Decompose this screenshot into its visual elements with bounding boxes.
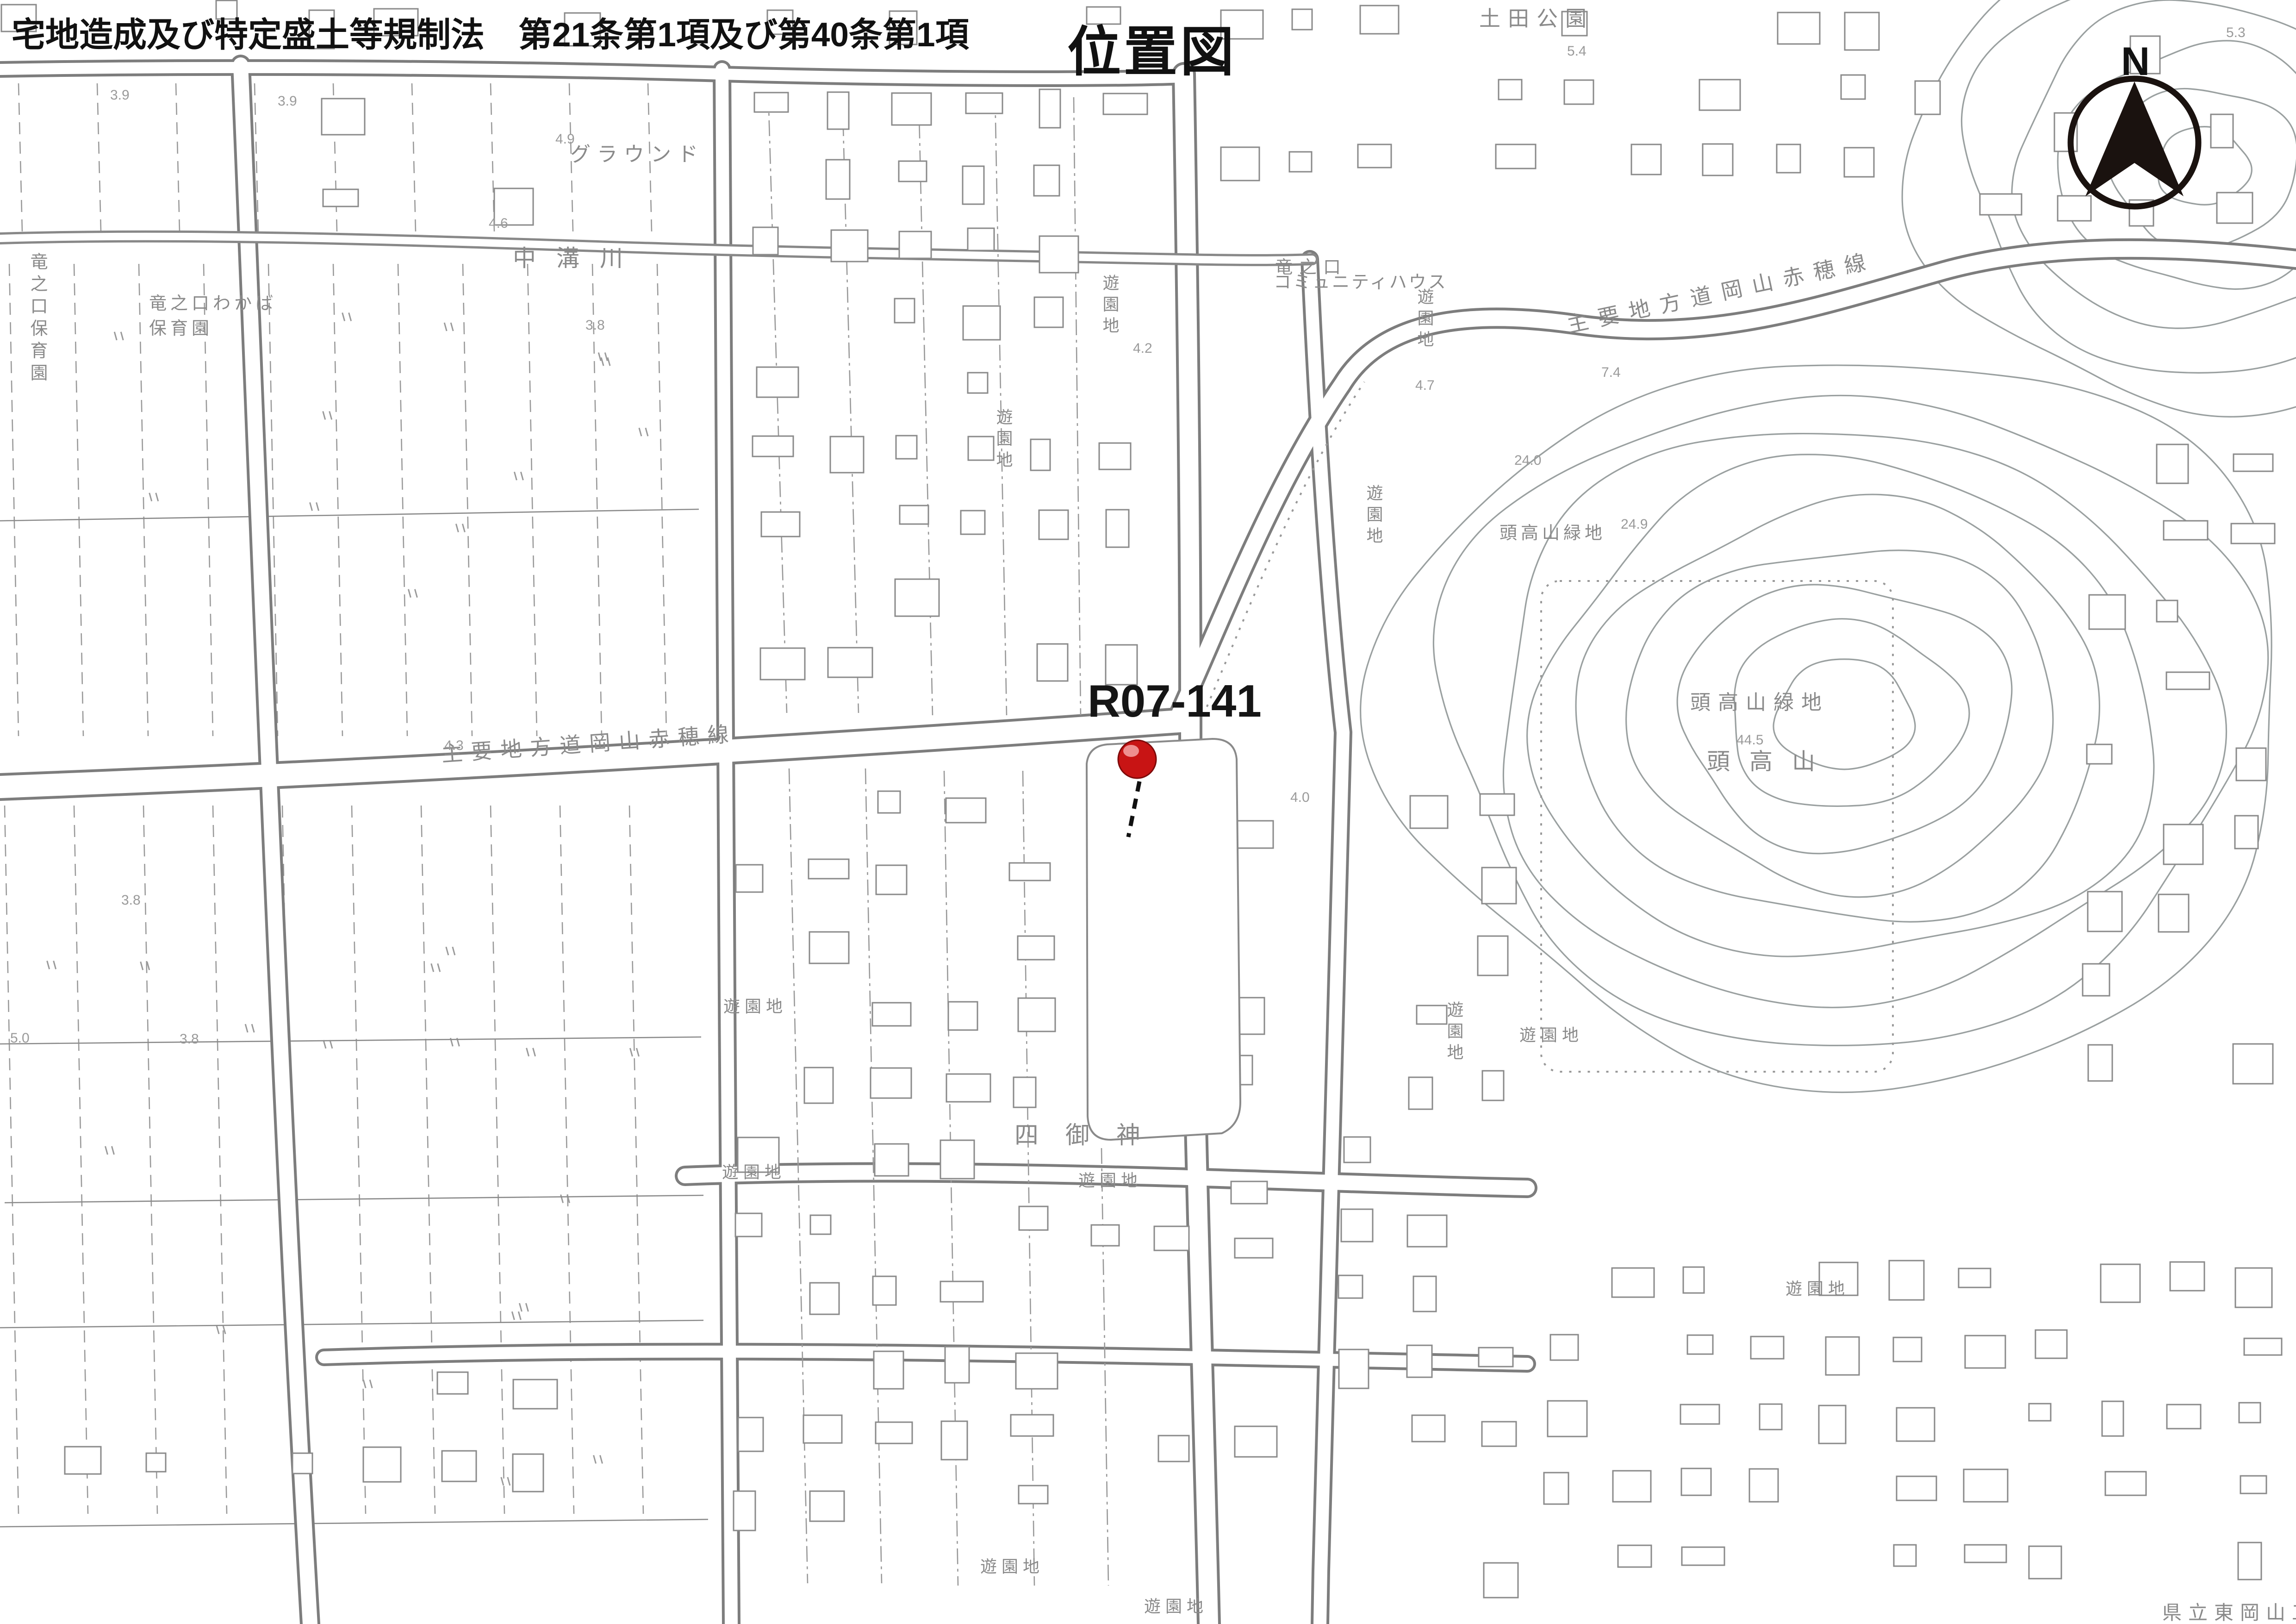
playground-label: 遊園地 xyxy=(722,1162,786,1181)
playground-label: 遊園地 xyxy=(1364,484,1383,548)
page-title: 位置図 xyxy=(1067,22,1237,82)
elevation-label: 7.4 xyxy=(1601,365,1621,380)
elevation-label: 3.9 xyxy=(110,87,130,103)
shigozen-district-label: 四御神 xyxy=(1014,1122,1167,1149)
site-code-label: R07-141 xyxy=(1088,675,1262,726)
playground-label: 遊園地 xyxy=(1101,274,1120,338)
elevation-label: 4.2 xyxy=(1133,341,1152,356)
elevation-label: 4.6 xyxy=(489,216,508,231)
pin-ball xyxy=(1118,740,1156,778)
elevation-label: 5.4 xyxy=(1567,44,1587,59)
location-map-canvas: 中溝川 主要地方道岡山赤穂線 主要地方道岡山赤穂線 グラウンド 竜之口保育園 竜… xyxy=(0,0,2296,1624)
elevation-label: 4.9 xyxy=(555,131,575,147)
playground-label: 遊園地 xyxy=(1519,1025,1583,1044)
elevation-label: 5.0 xyxy=(10,1031,30,1046)
elevation-label: 4.3 xyxy=(444,738,464,753)
river-label: 中溝川 xyxy=(513,245,643,271)
playground-label: 遊園地 xyxy=(1078,1171,1142,1190)
elevation-label: 4.0 xyxy=(1290,790,1310,805)
elevation-label: 3.8 xyxy=(121,893,141,908)
playground-label: 遊園地 xyxy=(1445,1001,1464,1065)
elevation-label: 3.9 xyxy=(278,94,297,109)
elevation-label: 24.0 xyxy=(1514,453,1541,468)
ground-label: グラウンド xyxy=(570,143,704,166)
zutakayama-green-label-north: 頭高山緑地 xyxy=(1500,524,1606,543)
elevation-label: 44.5 xyxy=(1736,732,1763,748)
elevation-label: 24.9 xyxy=(1621,517,1648,532)
zutakayama-peak-label: 頭高山 xyxy=(1707,749,1835,775)
tsuchida-park-label: 土田公園 xyxy=(1479,6,1594,31)
site-parcel-outline xyxy=(1087,739,1240,1140)
nursery-label-line1: 竜之口わかば xyxy=(149,294,277,313)
school-label: 県立東岡山工業高 xyxy=(2162,1602,2296,1624)
elevation-label: 3.8 xyxy=(180,1031,199,1047)
playground-label: 遊園地 xyxy=(723,997,787,1016)
playground-label: 遊園地 xyxy=(980,1557,1044,1576)
playground-label: 遊園地 xyxy=(1144,1597,1208,1616)
legal-reference-title: 宅地造成及び特定盛土等規制法 第21条第1項及び第40条第1項 xyxy=(12,16,970,54)
playground-label: 遊園地 xyxy=(994,408,1013,472)
nursery-label-vertical: 竜之口保育園 xyxy=(27,252,48,386)
zutakayama-green-label-south: 頭高山緑地 xyxy=(1690,691,1829,714)
playground-label: 遊園地 xyxy=(1415,288,1434,352)
pin-highlight xyxy=(1123,745,1139,757)
playground-label: 遊園地 xyxy=(1786,1279,1849,1298)
nursery-label-line2: 保育園 xyxy=(149,319,213,338)
elevation-label: 5.3 xyxy=(2226,25,2246,40)
elevation-label: 3.8 xyxy=(585,318,605,333)
elevation-label: 4.7 xyxy=(1415,378,1435,393)
